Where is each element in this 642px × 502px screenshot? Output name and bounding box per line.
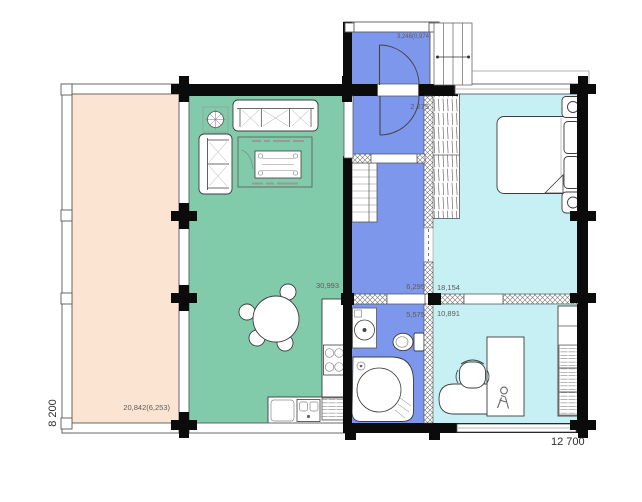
terrace-living-divider-wall xyxy=(179,84,189,433)
bedroom-wardrobe xyxy=(433,93,460,219)
post-icon xyxy=(345,23,354,32)
terrace-area-label: 20,842(6,253) xyxy=(123,403,170,412)
entry-wall-right xyxy=(417,84,458,96)
post-icon xyxy=(61,293,72,304)
porch-area-label: 3,248(0,974) xyxy=(397,34,431,40)
living-hall-opening xyxy=(344,96,353,158)
canopy-line xyxy=(472,71,589,84)
living-hall-wall xyxy=(343,156,352,425)
corner-bathtub-icon xyxy=(352,357,414,422)
room-terrace xyxy=(66,88,184,425)
hall-partition-right xyxy=(417,154,425,163)
bedroom-office-wall-left xyxy=(440,294,464,304)
hall-wardrobe xyxy=(352,163,377,222)
office-door-opening xyxy=(464,294,503,304)
bath-area-label: 5,575 xyxy=(406,310,425,319)
kitchen-cabinet-icon xyxy=(271,400,294,421)
bath-sink-icon xyxy=(353,308,377,348)
sofa-left xyxy=(199,134,232,194)
toilet-icon xyxy=(393,333,424,351)
office-area-label: 10,891 xyxy=(437,309,460,318)
terrace-left-wall xyxy=(62,84,72,433)
bedroom-office-wall-right xyxy=(503,294,578,304)
right-exterior-wall xyxy=(577,84,588,433)
post-icon xyxy=(61,418,72,429)
dishwasher-icon xyxy=(322,398,346,420)
living-area-label: 30,993 xyxy=(316,281,339,290)
sofa-top xyxy=(233,100,318,131)
hall-door-width-label: 2 275 xyxy=(410,102,429,111)
width-dimension-label: 12 700 xyxy=(551,436,585,448)
bath-office-wall xyxy=(424,304,433,423)
bedroom-area-label: 18,154 xyxy=(437,283,460,292)
height-dimension-label: 8 200 xyxy=(47,399,59,427)
entry-stairs xyxy=(434,23,472,85)
hall-bath-wall xyxy=(351,294,387,304)
hall-bedroom-wall xyxy=(424,96,433,228)
living-top-wall xyxy=(179,84,352,96)
bath-door-opening xyxy=(387,294,425,304)
bottom-thin-wall xyxy=(62,423,348,433)
bed xyxy=(497,117,581,194)
floor-plan-drawing: 20,842(6,253) 30,993 6,295 5,575 18,154 … xyxy=(0,0,642,502)
post-icon xyxy=(61,84,72,95)
hall-partition-opening xyxy=(371,154,417,163)
hall-partition-left xyxy=(352,154,373,163)
hall-area-label: 6,295 xyxy=(406,282,425,291)
terrace-top-wall xyxy=(62,84,186,94)
floor-plan-canvas: 20,842(6,253) 30,993 6,295 5,575 18,154 … xyxy=(0,0,642,502)
post-icon xyxy=(61,210,72,221)
porch-top-wall xyxy=(344,22,439,32)
entry-door-opening xyxy=(378,84,419,96)
